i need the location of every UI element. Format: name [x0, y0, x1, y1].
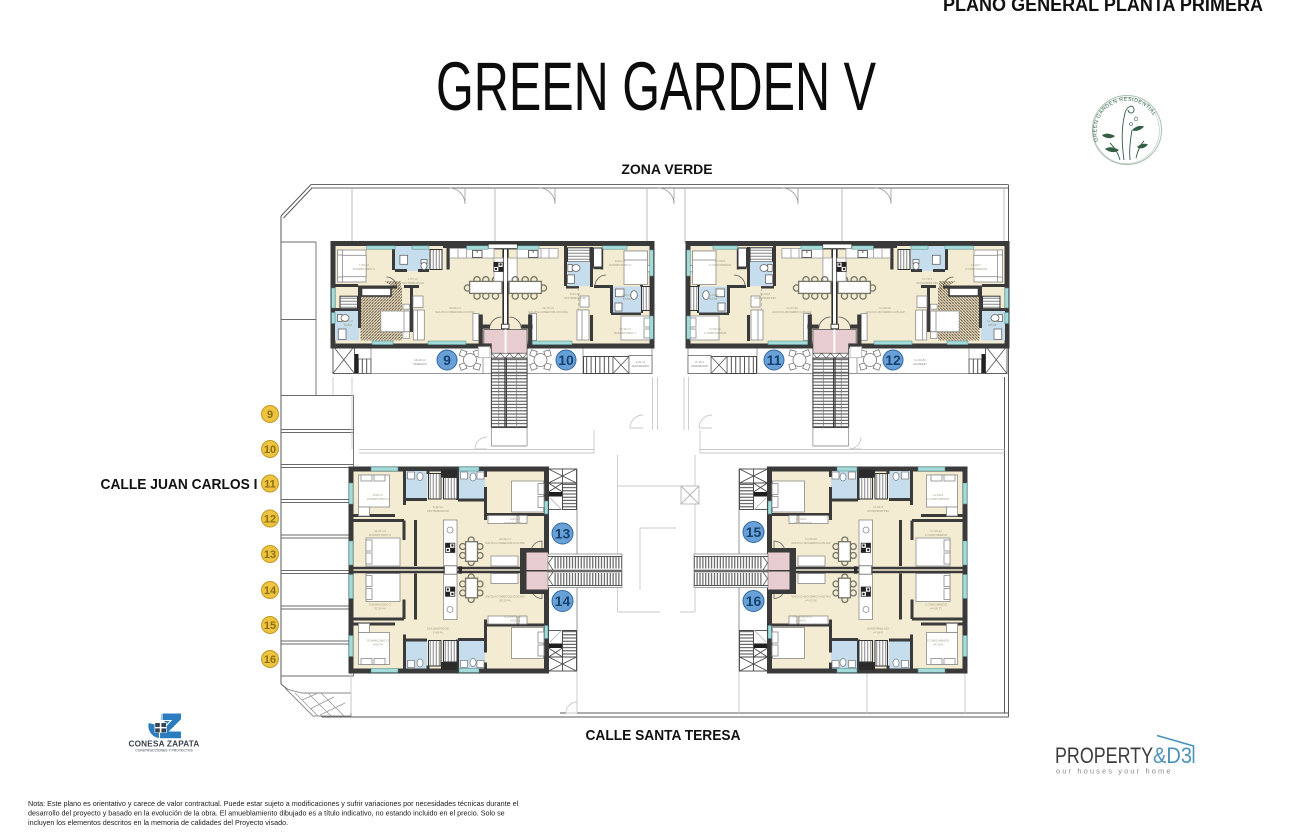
svg-text:DISTRIBUIDOR: DISTRIBUIDOR [427, 509, 449, 513]
svg-text:9: 9 [443, 352, 451, 368]
svg-text:15: 15 [264, 620, 276, 632]
svg-text:desarrollo del proyecto y basa: desarrollo del proyecto y basado en la e… [28, 809, 505, 818]
svg-text:DORMITORIO 3: DORMITORIO 3 [369, 533, 391, 537]
svg-text:15: 15 [746, 524, 762, 540]
svg-text:DORMITORIO 2: DORMITORIO 2 [609, 263, 631, 267]
svg-text:14: 14 [264, 585, 277, 597]
svg-text:PROPERTY: PROPERTY [1055, 743, 1153, 768]
svg-text:SALÓN-COMEDOR-COCINA: SALÓN-COMEDOR-COCINA [435, 309, 475, 314]
svg-text:PLANO GENERAL PLANTA PRIMERA: PLANO GENERAL PLANTA PRIMERA [943, 0, 1263, 16]
svg-text:DORMITORIO 1: DORMITORIO 1 [614, 331, 636, 335]
svg-text:12: 12 [264, 514, 276, 526]
svg-text:CALLE SANTA TERESA: CALLE SANTA TERESA [586, 727, 741, 744]
svg-text:ZONA VERDE: ZONA VERDE [621, 161, 712, 177]
svg-text:DISTRIBUIDOR: DISTRIBUIDOR [564, 296, 586, 300]
svg-text:Nota: Este plano es orientativ: Nota: Este plano es orientativo y carece… [28, 799, 519, 808]
svg-text:CALLE JUAN CARLOS I: CALLE JUAN CARLOS I [101, 476, 258, 493]
svg-text:13: 13 [555, 526, 571, 542]
svg-text:&D3: &D3 [1153, 743, 1192, 768]
svg-text:DORMITORIO 2: DORMITORIO 2 [353, 267, 375, 271]
svg-text:BAÑO: BAÑO [623, 296, 632, 301]
svg-text:our houses your home: our houses your home [1056, 767, 1173, 776]
svg-text:10: 10 [264, 444, 276, 456]
svg-text:16: 16 [264, 654, 276, 666]
svg-text:16: 16 [746, 593, 762, 609]
svg-text:TERRAZA: TERRAZA [413, 362, 427, 366]
svg-text:11: 11 [264, 479, 276, 491]
svg-text:SALÓN-COMEDOR-COCINA: SALÓN-COMEDOR-COCINA [528, 309, 568, 314]
svg-text:12: 12 [885, 352, 901, 368]
svg-text:incluyen los elementos descrit: incluyen los elementos descritos en la m… [28, 818, 288, 827]
svg-text:TENDEDERO: TENDEDERO [632, 364, 650, 368]
svg-text:GREEN GARDEN V: GREEN GARDEN V [436, 48, 876, 125]
svg-text:BAÑO: BAÑO [344, 322, 353, 327]
svg-text:14: 14 [555, 593, 571, 609]
svg-text:SALÓN-COMEDOR-COCINA: SALÓN-COMEDOR-COCINA [485, 540, 525, 545]
svg-text:DORMITORIO 2: DORMITORIO 2 [367, 497, 389, 501]
svg-text:DORMITORIO 1: DORMITORIO 1 [504, 521, 526, 525]
svg-text:11: 11 [767, 352, 782, 368]
svg-text:CONSTRUCCIONES Y PROYECTOS: CONSTRUCCIONES Y PROYECTOS [135, 749, 193, 753]
svg-text:9: 9 [267, 409, 273, 421]
svg-text:13: 13 [264, 549, 276, 561]
svg-text:DISTRIBUIDOR: DISTRIBUIDOR [402, 281, 424, 285]
svg-text:CONESA ZAPATA: CONESA ZAPATA [129, 740, 200, 749]
svg-text:10: 10 [558, 352, 574, 368]
